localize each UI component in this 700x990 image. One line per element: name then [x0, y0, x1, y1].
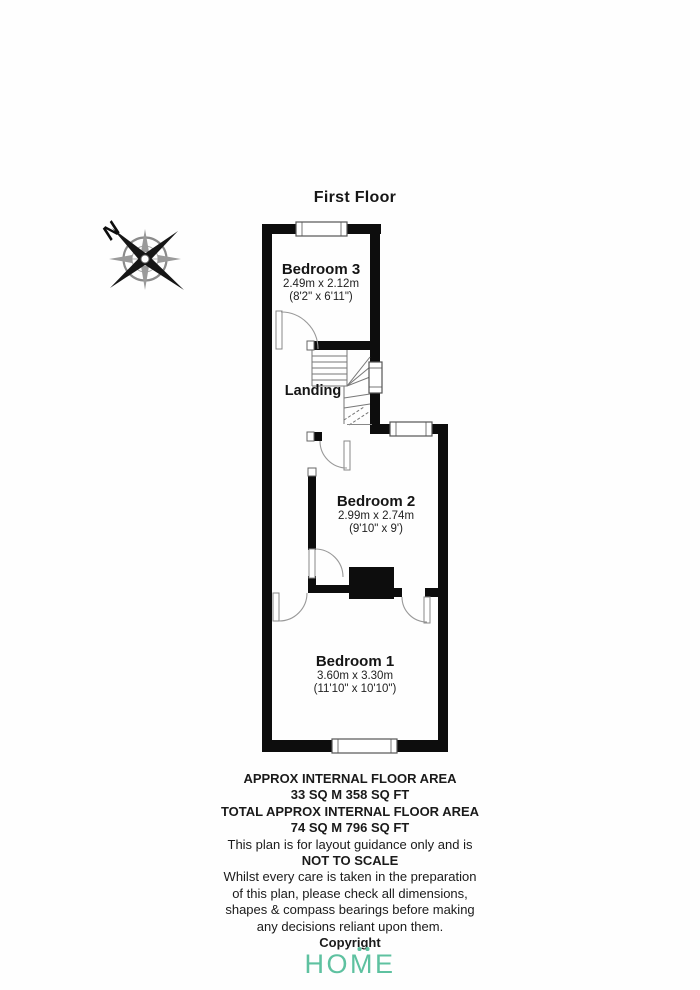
bedroom1-right-door	[402, 597, 430, 623]
room-label-bedroom1: Bedroom 1 3.60m x 3.30m (11'10" x 10'10"…	[314, 653, 397, 695]
disclaimer-line-4: any decisions reliant upon them.	[0, 919, 700, 935]
compass-rose: N	[98, 217, 184, 290]
disclaimer-line-1: Whilst every care is taken in the prepar…	[0, 869, 700, 885]
floor-area-heading: APPROX INTERNAL FLOOR AREA	[0, 771, 700, 787]
bedroom2-top-door	[320, 441, 350, 470]
chimney-breast	[349, 567, 394, 599]
room-label-bedroom3: Bedroom 3 2.49m x 2.12m (8'2" x 6'11")	[282, 261, 360, 303]
room-label-landing: Landing	[285, 383, 341, 399]
room-label-bedroom2: Bedroom 2 2.99m x 2.74m (9'10" x 9')	[337, 493, 415, 535]
total-area-heading: TOTAL APPROX INTERNAL FLOOR AREA	[0, 804, 700, 820]
floor-plan-page: First Floor	[0, 0, 700, 990]
bedroom2-window	[390, 422, 432, 436]
disclaimer-line-2: of this plan, please check all dimension…	[0, 886, 700, 902]
bedroom1-window	[332, 739, 397, 753]
room-name: Bedroom 2	[337, 493, 415, 510]
disclaimer-line-3: shapes & compass bearings before making	[0, 902, 700, 918]
north-label: N	[98, 217, 125, 245]
room-dim-imperial: (11'10" x 10'10")	[314, 683, 397, 696]
bedroom1-left-door	[273, 593, 307, 621]
floor-area-value: 33 SQ M 358 SQ FT	[0, 787, 700, 803]
room-name: Bedroom 3	[282, 261, 360, 278]
room-dim-imperial: (8'2" x 6'11")	[282, 291, 360, 304]
room-dim-imperial: (9'10" x 9')	[337, 523, 415, 536]
room-dim-metric: 3.60m x 3.30m	[314, 670, 397, 683]
room-dim-metric: 2.49m x 2.12m	[282, 278, 360, 291]
logo-part2: E	[375, 949, 396, 979]
total-area-value: 74 SQ M 796 SQ FT	[0, 820, 700, 836]
home-logo: HOME	[304, 949, 395, 980]
logo-part1: HO	[304, 949, 350, 979]
bedroom3-window	[296, 222, 347, 236]
landing-window	[369, 362, 382, 393]
guidance-line: This plan is for layout guidance only an…	[0, 837, 700, 853]
bedroom2-side-door	[309, 549, 343, 578]
footer-disclaimer: APPROX INTERNAL FLOOR AREA 33 SQ M 358 S…	[0, 771, 700, 951]
not-to-scale-line: NOT TO SCALE	[0, 853, 700, 869]
room-name: Bedroom 1	[314, 653, 397, 670]
room-dim-metric: 2.99m x 2.74m	[337, 510, 415, 523]
logo-m-with-dots: M	[350, 949, 375, 979]
